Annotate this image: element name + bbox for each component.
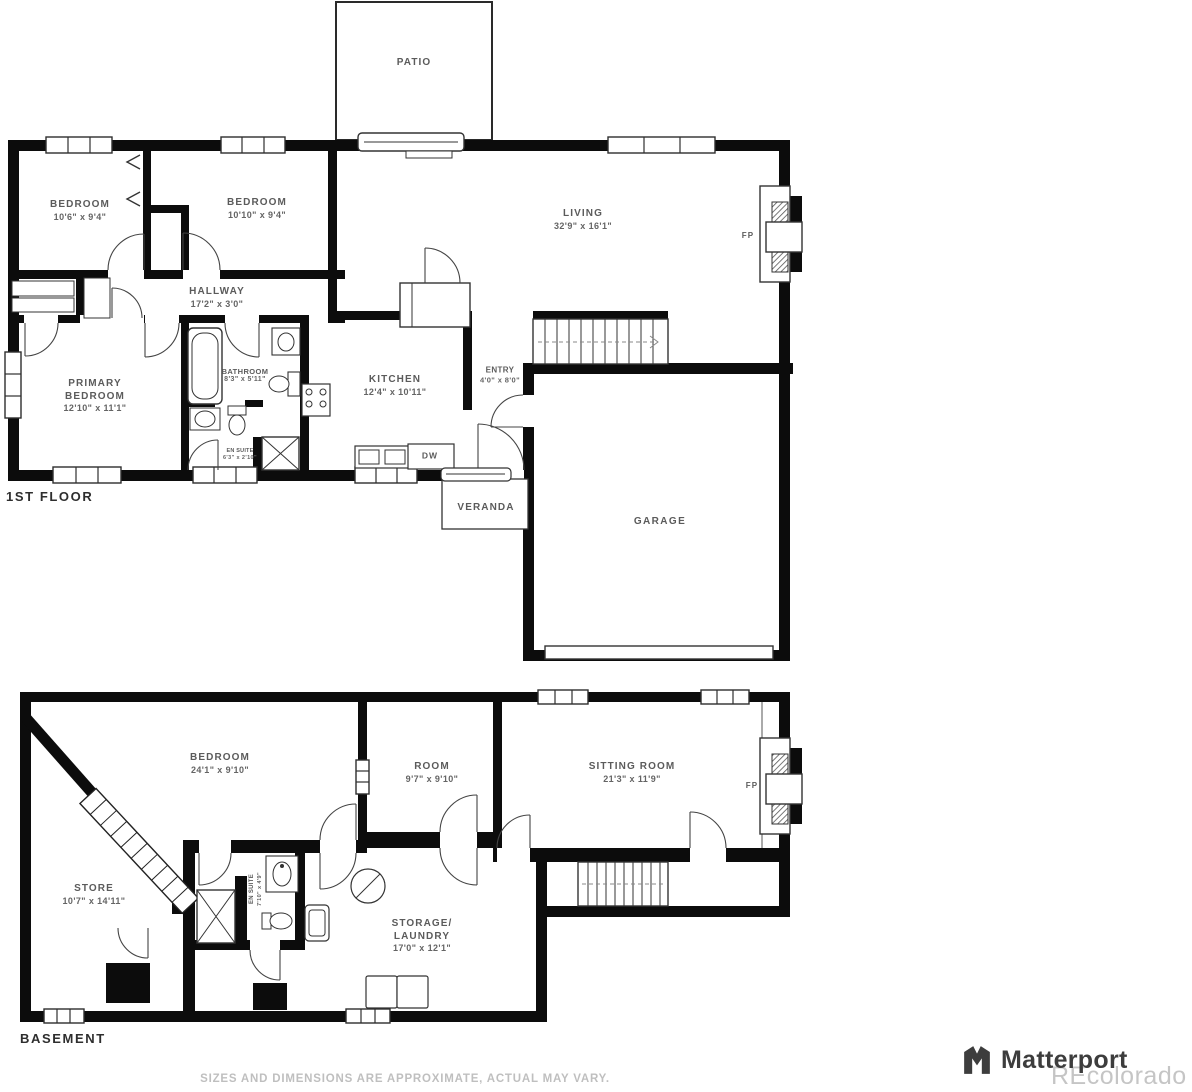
room-label-patio: PATIO bbox=[397, 57, 432, 70]
floor-title-basement: BASEMENT bbox=[20, 1031, 106, 1046]
room-label-bathroom: BATHROOM 8'3" x 5'11" bbox=[222, 367, 269, 385]
label-fireplace-first: FP bbox=[742, 231, 754, 241]
room-label-store: STORE 10'7" x 14'11" bbox=[63, 883, 126, 907]
closet-bifold-marks bbox=[127, 155, 140, 206]
room-label-basement-ensuite: EN SUITE 7'10" x 4'9" bbox=[249, 872, 263, 906]
matterport-wordmark: Matterport bbox=[1001, 1046, 1128, 1075]
patio-outline bbox=[336, 2, 492, 140]
room-label-bedroom-1: BEDROOM 10'6" x 9'4" bbox=[50, 199, 110, 223]
label-fireplace-basement: FP bbox=[746, 781, 758, 791]
floor-title-first: 1ST FLOOR bbox=[6, 489, 93, 504]
room-label-bedroom-2: BEDROOM 10'10" x 9'4" bbox=[227, 197, 287, 221]
stairs-first-floor bbox=[533, 319, 668, 364]
room-label-basement-bedroom: BEDROOM 24'1" x 9'10" bbox=[190, 752, 250, 776]
fireplace-first-floor bbox=[760, 186, 802, 282]
room-label-sitting-room: SITTING ROOM 21'3" x 11'9" bbox=[589, 761, 676, 785]
room-label-entry: ENTRY 4'0" x 8'0" bbox=[480, 365, 520, 384]
floorplan-page: PATIO BEDROOM 10'6" x 9'4" BEDROOM 10'10… bbox=[0, 0, 1192, 1092]
pantry-closet bbox=[400, 248, 470, 327]
room-label-hallway: HALLWAY 17'2" x 3'0" bbox=[189, 286, 245, 310]
room-label-veranda: VERANDA bbox=[457, 502, 514, 515]
hall-closet-shelves bbox=[12, 278, 110, 318]
ensuite-shower bbox=[262, 437, 299, 470]
room-label-primary-bedroom: PRIMARY BEDROOM 12'10" x 11'1" bbox=[64, 378, 127, 414]
matterport-m-icon bbox=[962, 1045, 992, 1075]
floorplan-drawing bbox=[0, 0, 1192, 1092]
room-label-ensuite-first: EN SUITE 6'3" x 2'10" bbox=[223, 448, 257, 462]
basement-plan bbox=[20, 690, 802, 1023]
basement-ensuite-fixtures bbox=[197, 856, 298, 943]
label-dishwasher: DW bbox=[422, 451, 438, 462]
room-label-garage: GARAGE bbox=[634, 516, 686, 529]
room-label-living: LIVING 32'9" x 16'1" bbox=[554, 208, 612, 232]
disclaimer-text: SIZES AND DIMENSIONS ARE APPROXIMATE, AC… bbox=[181, 1073, 629, 1085]
room-label-basement-room: ROOM 9'7" x 9'10" bbox=[406, 761, 459, 785]
room-label-storage-laundry: STORAGE/ LAUNDRY 17'0" x 12'1" bbox=[392, 918, 453, 954]
first-floor-plan bbox=[5, 2, 802, 661]
stairs-basement bbox=[578, 862, 668, 906]
fireplace-basement bbox=[760, 738, 802, 834]
patio-sliding-door bbox=[358, 133, 464, 158]
garage-door bbox=[545, 646, 773, 659]
matterport-logo: Matterport bbox=[962, 1045, 1128, 1075]
room-label-kitchen: KITCHEN 12'4" x 10'11" bbox=[364, 374, 427, 398]
